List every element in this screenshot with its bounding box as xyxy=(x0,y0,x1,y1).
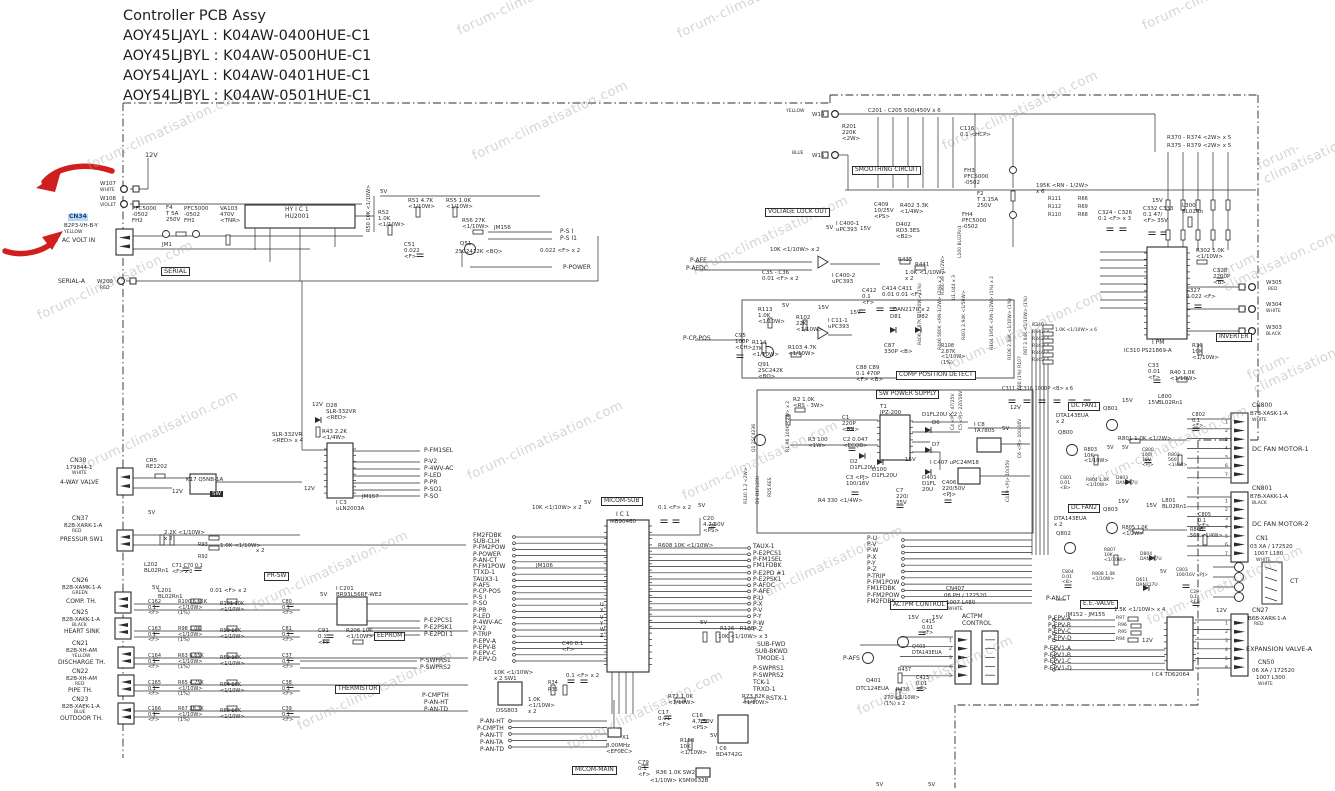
component-label: W14 xyxy=(812,112,824,118)
component-label: TMODE-1 xyxy=(757,656,785,663)
component-label: 5V xyxy=(928,782,935,788)
net-stub xyxy=(902,558,905,561)
component-label: RED xyxy=(72,529,81,534)
component-label: R201 220K <2W> xyxy=(842,124,860,142)
component-label: YELLOW xyxy=(64,230,82,235)
component-label: 15V xyxy=(860,226,871,232)
component-label: CN22 xyxy=(72,669,88,676)
component-label: 12V xyxy=(304,486,315,492)
resistor-symbol xyxy=(1131,624,1141,628)
component-label: I C6 BD4742G xyxy=(716,746,742,758)
component-label: R95 xyxy=(1118,630,1127,635)
net-stub xyxy=(509,739,512,742)
component-label: R344 xyxy=(1032,351,1044,356)
component-label: P-SO xyxy=(424,494,438,501)
net-stub xyxy=(513,610,516,613)
component-label: C413 0.01 <F> xyxy=(916,676,929,693)
connector-pin-number: 2 xyxy=(1225,428,1228,434)
component-label: CN801 xyxy=(1252,486,1272,493)
component-label: VIOLET xyxy=(100,203,116,208)
net-stub xyxy=(513,660,516,663)
resistor-symbol xyxy=(1043,346,1053,350)
component-label: R72 1.0K <1/10W> xyxy=(668,694,695,706)
component-label: 12V xyxy=(172,489,183,495)
component-label: P-AN-CT xyxy=(1046,596,1070,603)
component-label: R69 xyxy=(1078,205,1088,211)
component-label: R66 xyxy=(1078,197,1088,203)
component-label: Q401 xyxy=(866,678,881,684)
net-stub xyxy=(748,571,751,574)
component-label: D28 SLR-332VR <RED> xyxy=(326,403,356,421)
component-label: P-EPV-D xyxy=(1048,636,1072,643)
component-label: 5V xyxy=(320,592,327,598)
component-label: R804 1.0K <1/10W> xyxy=(1086,478,1109,488)
component-label: 06 XA / 172520 xyxy=(1252,668,1295,674)
component-label: R805 1.0K <1/2W> xyxy=(1122,526,1148,537)
component-label: JM152 - JM155 xyxy=(1066,612,1105,618)
component-label: DC FAN MOTOR-2 xyxy=(1252,521,1309,528)
component-label: RED xyxy=(1254,622,1263,627)
component-label: B7B-XAKK-1-A xyxy=(1250,494,1288,500)
component-label: Q403 DTA143EUA xyxy=(912,645,942,656)
net-stub xyxy=(902,589,905,592)
component-label: R36 1.0K SW2 xyxy=(656,770,695,776)
component-label: C79 0.1 <F> xyxy=(638,760,650,778)
wire-terminal xyxy=(1249,306,1256,313)
component-label: R106 2.49K <1/10W> (1%) xyxy=(1008,298,1013,360)
resistor-symbol xyxy=(1043,325,1053,329)
ct-tick xyxy=(1265,577,1277,581)
section-label: COMP POSITION DETECT xyxy=(896,371,976,380)
component-label: P-AFDC xyxy=(686,266,708,273)
connector-pin-number: 1 xyxy=(1225,419,1228,425)
section-label: SW POWER SUPPLY xyxy=(876,390,939,399)
component-label: 15V xyxy=(1146,503,1157,509)
component-label: HY I C 1 HU2001 xyxy=(285,207,309,220)
component-label: WHITE xyxy=(1256,558,1271,563)
component-label: CN37 xyxy=(72,516,88,523)
component-label: COMP. TH. xyxy=(66,599,97,606)
component-label: R104 195K <RN-1/2W> (1%) x 2 xyxy=(990,276,995,350)
net-stub xyxy=(513,585,516,588)
component-label: I C11-1 uPC393 xyxy=(828,318,849,330)
component-label: 5V xyxy=(876,782,883,788)
component-label: L300 BL02Rn xyxy=(1182,203,1203,215)
component-label: I C 1 xyxy=(616,512,630,519)
resistor-symbol xyxy=(898,673,902,683)
component-label: C20 4.7/50V <PS> xyxy=(703,516,724,534)
component-label: 15V xyxy=(1122,398,1133,404)
component-label: D611 DAN217U xyxy=(1136,578,1158,588)
net-stub xyxy=(748,565,751,568)
net-stub xyxy=(513,629,516,632)
section-label: ACTPM CONTROL xyxy=(890,601,948,610)
net-stub xyxy=(513,622,516,625)
component-label: C87 330P <B> xyxy=(884,343,913,355)
net-stub xyxy=(748,596,751,599)
diode-symbol xyxy=(890,327,896,333)
component-label: DISCHARGE TH. xyxy=(58,660,106,667)
component-label: C164 0.1 <F> xyxy=(148,654,161,671)
resistor-symbol xyxy=(316,427,320,437)
component-label: CN23 xyxy=(72,697,88,704)
component-label: P-CP-POS xyxy=(683,336,711,343)
component-label: PFC5000 -0502 FH2 xyxy=(132,206,156,224)
component-label: R51 4.7K <1/10W> xyxy=(408,198,435,210)
component-label: Q801 xyxy=(1103,406,1118,412)
resistor-symbol xyxy=(353,640,363,644)
wire-terminal xyxy=(1249,284,1256,291)
ct-tick xyxy=(1265,597,1277,601)
resistor-symbol xyxy=(1043,339,1053,343)
ct-tick xyxy=(1265,567,1277,571)
component-label: DC FAN MOTOR-1 xyxy=(1252,446,1309,453)
component-label: RED xyxy=(1268,287,1277,292)
component-label: MB90460 xyxy=(610,519,636,525)
resistor-symbol xyxy=(1197,260,1207,264)
component-label: FH3 PFC5000 -0502 xyxy=(964,168,988,186)
resistor-symbol xyxy=(1196,230,1200,240)
connector-pin-number: 5 xyxy=(1225,656,1228,662)
component-label: R62 10K <1/10W> xyxy=(220,656,245,667)
net-stub xyxy=(902,545,905,548)
net-stub xyxy=(509,746,512,749)
component-label: W108 xyxy=(100,196,116,202)
section-label: MICOM-MAIN xyxy=(572,766,617,775)
component-label: P-POWER xyxy=(563,265,591,272)
component-label: D6 xyxy=(932,420,940,426)
ic-block xyxy=(337,597,367,625)
component-label: P-AFE xyxy=(690,258,707,265)
terminal-pad xyxy=(133,186,139,192)
ic-block xyxy=(718,715,748,743)
ic-block xyxy=(1167,617,1193,670)
component-label: WHITE xyxy=(948,607,963,612)
connector-pin-number: 3 xyxy=(1225,516,1228,522)
component-label: WHITE xyxy=(1258,682,1273,687)
component-label: W107 xyxy=(100,181,116,187)
component-label: R206 10K <1/10W> xyxy=(346,628,373,640)
component-label: R63 6.65K <1/10W> (1%) xyxy=(178,654,204,671)
component-label: R93 xyxy=(198,543,208,549)
connector-cn22 xyxy=(118,675,134,696)
connector-pin-number: 5 xyxy=(1225,533,1228,539)
connector-pin-number: 1 xyxy=(1225,498,1228,504)
component-label: R98 1.0K <1/10W> (1%) xyxy=(178,627,203,644)
resistor-symbol xyxy=(1043,332,1053,336)
component-label: W304 xyxy=(1266,302,1282,308)
resistor-symbol xyxy=(563,685,567,695)
component-label: R342 xyxy=(1032,337,1044,342)
component-label: W303 xyxy=(1266,325,1282,331)
net-stub xyxy=(513,647,516,650)
component-label: CN21 xyxy=(72,641,88,648)
component-label: 10K <1/10W> x 2 xyxy=(532,505,582,511)
component-label: R802 560 <1/4W> xyxy=(1168,453,1187,468)
component-label: 4-WAY VALVE xyxy=(60,480,99,487)
component-label: C5 <PJ> 220/16V xyxy=(959,391,964,430)
component-label: SLR-332VR <RED> x 4 xyxy=(272,432,303,444)
component-label: C800 100/ 16V <PJ> xyxy=(1142,448,1154,468)
component-label: R375 - R379 <2W> x 5 xyxy=(1167,143,1231,149)
ct-tick xyxy=(1265,587,1277,591)
model-line-4: AOY54LJBYL : K04AW-0501HUE-C1 xyxy=(123,88,371,104)
component-label: C3 <PJ> 100/16V xyxy=(846,475,869,487)
component-label: C4 <PJ> 47/25V xyxy=(951,394,956,431)
resistor-symbol xyxy=(1226,200,1230,210)
component-label: C406 220/50V <PJ> xyxy=(942,480,965,498)
component-label: L801 BL02Rn1 xyxy=(1162,498,1187,510)
component-label: R806 560 <1/4W> xyxy=(1190,528,1223,539)
connector-pin-number: 6 xyxy=(1225,463,1228,469)
component-label: 8.00MHz <EF0EC> xyxy=(606,743,633,755)
connector-pin-number: 7 xyxy=(1225,551,1228,557)
net-stub xyxy=(513,542,516,545)
component-label: D402 RD3.3ES <B2> xyxy=(896,222,920,240)
component-label: R114 27K <1/10W> xyxy=(752,340,779,358)
component-label: C91 0.1 <F> xyxy=(318,628,330,646)
schematic-canvas: 1234567123456712345612345 Controller PCB… xyxy=(0,0,1335,791)
component-label: C201 - C205 500/450V x 6 xyxy=(868,108,941,114)
model-line-2: AOY45LJBYL : K04AW-0500HUE-C1 xyxy=(123,48,371,64)
net-stub xyxy=(513,560,516,563)
ic-block xyxy=(977,438,1001,452)
component-label: 5V xyxy=(710,733,717,739)
component-label: W305 xyxy=(1266,280,1282,286)
component-label: 5V xyxy=(1107,446,1114,452)
component-label: x 2 xyxy=(256,548,265,554)
component-label: 10K <1/10W> x 3 xyxy=(718,634,768,640)
component-label: RD5.6ES xyxy=(768,478,773,497)
component-label: 1.0K <1/10W> xyxy=(220,543,261,549)
transistor-symbol xyxy=(1067,445,1078,456)
component-label: DTA143EUA x 2 xyxy=(1054,516,1087,528)
ct-loop xyxy=(1235,593,1244,602)
component-label: 195K <RN - 1/2W> x 6 xyxy=(1036,183,1089,195)
component-label: C29 0.1 <F> xyxy=(1190,590,1200,605)
ic-block xyxy=(1147,247,1187,339)
component-label: VA103 470V <TNR> xyxy=(220,206,241,224)
connector-cn37 xyxy=(117,530,133,551)
component-label: L800 BL02Rn1 xyxy=(1158,394,1183,406)
component-label: ACTPM CONTROL xyxy=(962,614,991,627)
connector-pin-number: 2 xyxy=(1225,629,1228,635)
component-label: 2.2K <1/10W> x 2 xyxy=(164,530,205,542)
resistor-symbol xyxy=(209,536,219,540)
connector-pin-number: 2 xyxy=(1225,507,1228,513)
connector-pin-number: 4 xyxy=(949,664,952,670)
component-label: P-AFS xyxy=(843,656,860,663)
component-label: D100 D1FL20U xyxy=(872,467,897,479)
resistor-symbol xyxy=(1128,617,1138,621)
section-label: SERIAL xyxy=(161,267,190,276)
net-stub xyxy=(513,653,516,656)
component-label: C38 0.1 <F> xyxy=(282,681,293,698)
component-label: C80 0.1 <F> xyxy=(282,600,293,617)
ct-loop xyxy=(1235,563,1244,572)
component-label: R35 xyxy=(548,688,558,694)
component-label: R99 10K <1/10W> xyxy=(220,629,245,640)
fuse-holder-symbol xyxy=(1010,167,1017,174)
net-stub xyxy=(748,602,751,605)
component-label: R73 82K <1/10W> xyxy=(742,694,769,706)
component-label: B2P3-VH-B-Y xyxy=(64,223,98,229)
component-label: C419 <PJ> 10/35V xyxy=(1006,460,1011,502)
wire-terminal xyxy=(121,186,128,193)
component-label: C35 - C36 0.01 <F> x 2 xyxy=(762,270,799,282)
component-label: JM157 xyxy=(362,494,379,500)
resistor-symbol xyxy=(1211,200,1215,210)
component-label: C2 0.047 <ECQB> xyxy=(843,437,868,449)
component-label: R3 100 <1W> xyxy=(808,437,828,449)
net-stub xyxy=(513,536,516,539)
section-label: VOLTAGE LOCK OUT xyxy=(765,208,830,217)
component-label: L100 BL02Rn1 xyxy=(958,225,963,258)
connector-pin-number: 5 xyxy=(949,673,952,679)
component-label: R64 10K <1/10W> xyxy=(220,683,245,694)
component-label: JM106 xyxy=(536,563,553,569)
net-stub xyxy=(509,726,512,729)
highlighted-ref-label: CN34 xyxy=(68,214,88,221)
component-label: C801 0.01 <B> xyxy=(1060,476,1072,491)
resistor-symbol xyxy=(1211,230,1215,240)
component-label: BLACK xyxy=(1266,332,1281,337)
component-label: X1 xyxy=(622,735,629,741)
wire-terminal xyxy=(832,152,839,159)
component-label: R360 39 <1/2W> xyxy=(941,255,946,295)
transistor-symbol xyxy=(1065,543,1076,554)
net-stub xyxy=(748,609,751,612)
component-label: Q803 xyxy=(1103,507,1118,513)
component-label: D1 D1FL20U xyxy=(756,476,761,504)
net-stub xyxy=(513,573,516,576)
net-stub xyxy=(513,548,516,551)
component-label: I C201 BR93L56RF-WE2 xyxy=(336,586,382,598)
component-label: Q91 2SC242K <BQ> xyxy=(758,362,783,380)
component-label: 5V xyxy=(826,225,833,231)
connector-pin-number: 1 xyxy=(949,637,952,643)
resistor-symbol xyxy=(1128,638,1138,642)
ic-block xyxy=(327,443,353,498)
component-label: 03 XA / 172520 xyxy=(1250,544,1293,550)
section-label: E.E.-VALVE xyxy=(1080,600,1118,609)
component-label: R803 10K <1/10W> xyxy=(1084,448,1109,465)
net-stub xyxy=(748,584,751,587)
transistor-symbol xyxy=(1107,523,1118,534)
diode-symbol xyxy=(315,417,321,423)
component-label: R102 22K <1/10W> xyxy=(796,315,823,333)
component-label: I PM xyxy=(1152,340,1164,347)
wire-terminal xyxy=(121,201,128,208)
resistor-symbol xyxy=(1188,217,1192,227)
component-label: CN25 xyxy=(72,610,88,617)
component-label: R43 2.2K <1/4W> xyxy=(322,429,347,441)
net-stub xyxy=(513,554,516,557)
component-label: I C400-2 uPC393 xyxy=(832,273,855,285)
component-label: WHITE xyxy=(100,188,115,193)
component-label: C71 C70 0.1 <F> x 2 xyxy=(172,564,203,575)
component-label: WHITE xyxy=(72,471,87,476)
component-label: 12V xyxy=(1216,608,1227,614)
connector-pin-number: 4 xyxy=(1225,525,1228,531)
component-label: P-SWPRS2 xyxy=(420,665,451,672)
component-label: SW xyxy=(210,491,223,497)
ct-loop xyxy=(1235,583,1244,592)
fuse-holder-symbol xyxy=(1010,212,1017,219)
net-stub xyxy=(902,570,905,573)
component-label: 12V xyxy=(145,152,158,159)
net-stub xyxy=(748,553,751,556)
component-label: Q802 xyxy=(1056,531,1071,537)
transistor-symbol xyxy=(898,637,909,648)
net-stub xyxy=(509,720,512,723)
net-stub xyxy=(513,567,516,570)
component-label: 15V xyxy=(818,305,829,311)
component-label: D803 DAN217U xyxy=(1116,476,1138,486)
component-label: PFC5000 -0502 FH1 xyxy=(184,206,208,224)
resistor-symbol xyxy=(209,546,219,550)
component-label: R807 10K <1/10W> xyxy=(1104,548,1126,563)
component-label: R302 1.0K <1/10W> xyxy=(1196,248,1224,260)
component-label: C7 220/ 35V xyxy=(896,488,908,506)
terminal-pad xyxy=(1239,284,1245,290)
component-label: W15 xyxy=(812,153,824,159)
component-label: R808 1.0K <1/10W> xyxy=(1092,572,1115,582)
component-label: C51 0.022 <F> xyxy=(404,242,420,260)
component-label: EXPANSION VALVE-A xyxy=(1246,646,1312,653)
component-label: 5V xyxy=(1160,570,1167,576)
component-label: P-Z xyxy=(753,627,763,634)
connector-pin-number: 1 xyxy=(1225,620,1228,626)
transistor-symbol xyxy=(1107,420,1118,431)
component-label: R97 xyxy=(1116,616,1125,621)
net-stub xyxy=(513,641,516,644)
connector-cn21 xyxy=(118,647,134,668)
transistor-symbol xyxy=(863,653,874,664)
component-label: PIPE TH. xyxy=(68,688,93,695)
resistor-symbol xyxy=(1181,230,1185,240)
section-label: INVERTER xyxy=(1216,333,1252,342)
net-stub xyxy=(513,591,516,594)
component-label: Q800 xyxy=(1058,430,1073,436)
component-label: CN1 xyxy=(1256,536,1269,543)
component-label: 12V xyxy=(1010,405,1021,411)
net-stub xyxy=(513,635,516,638)
component-label: C17 0.01 <F> xyxy=(658,710,670,728)
component-label: R441 xyxy=(915,262,929,268)
net-stub xyxy=(748,621,751,624)
component-label: C95 100P <CH> xyxy=(735,333,752,351)
component-label: R158 10K <1/10W> xyxy=(680,738,707,756)
net-stub xyxy=(748,547,751,550)
component-label: 5V xyxy=(782,303,789,309)
section-label: MICOM-SUB xyxy=(601,497,643,506)
connector-cn30 xyxy=(117,468,133,495)
connector-pin-number: 4 xyxy=(1225,446,1228,452)
component-label: SERIAL-A xyxy=(58,279,85,286)
component-label: R52 1.0K <1/10W> xyxy=(378,210,405,228)
component-label: 0.01 <F> x 2 xyxy=(210,588,247,594)
component-label: 270 <1/10W> (1%) x 2 xyxy=(884,696,920,707)
component-label: R341 xyxy=(1032,330,1044,335)
component-label: R402 3.3K <1/4W> xyxy=(900,203,928,215)
net-stub xyxy=(902,576,905,579)
component-label: C39 0.1 <F> xyxy=(282,707,293,724)
component-label: R111 xyxy=(1048,197,1061,203)
net-stub xyxy=(748,615,751,618)
component-label: Q1 2SC4236 xyxy=(752,424,757,452)
component-label: R108 2.87K <1/10W> (1%) xyxy=(941,344,966,366)
